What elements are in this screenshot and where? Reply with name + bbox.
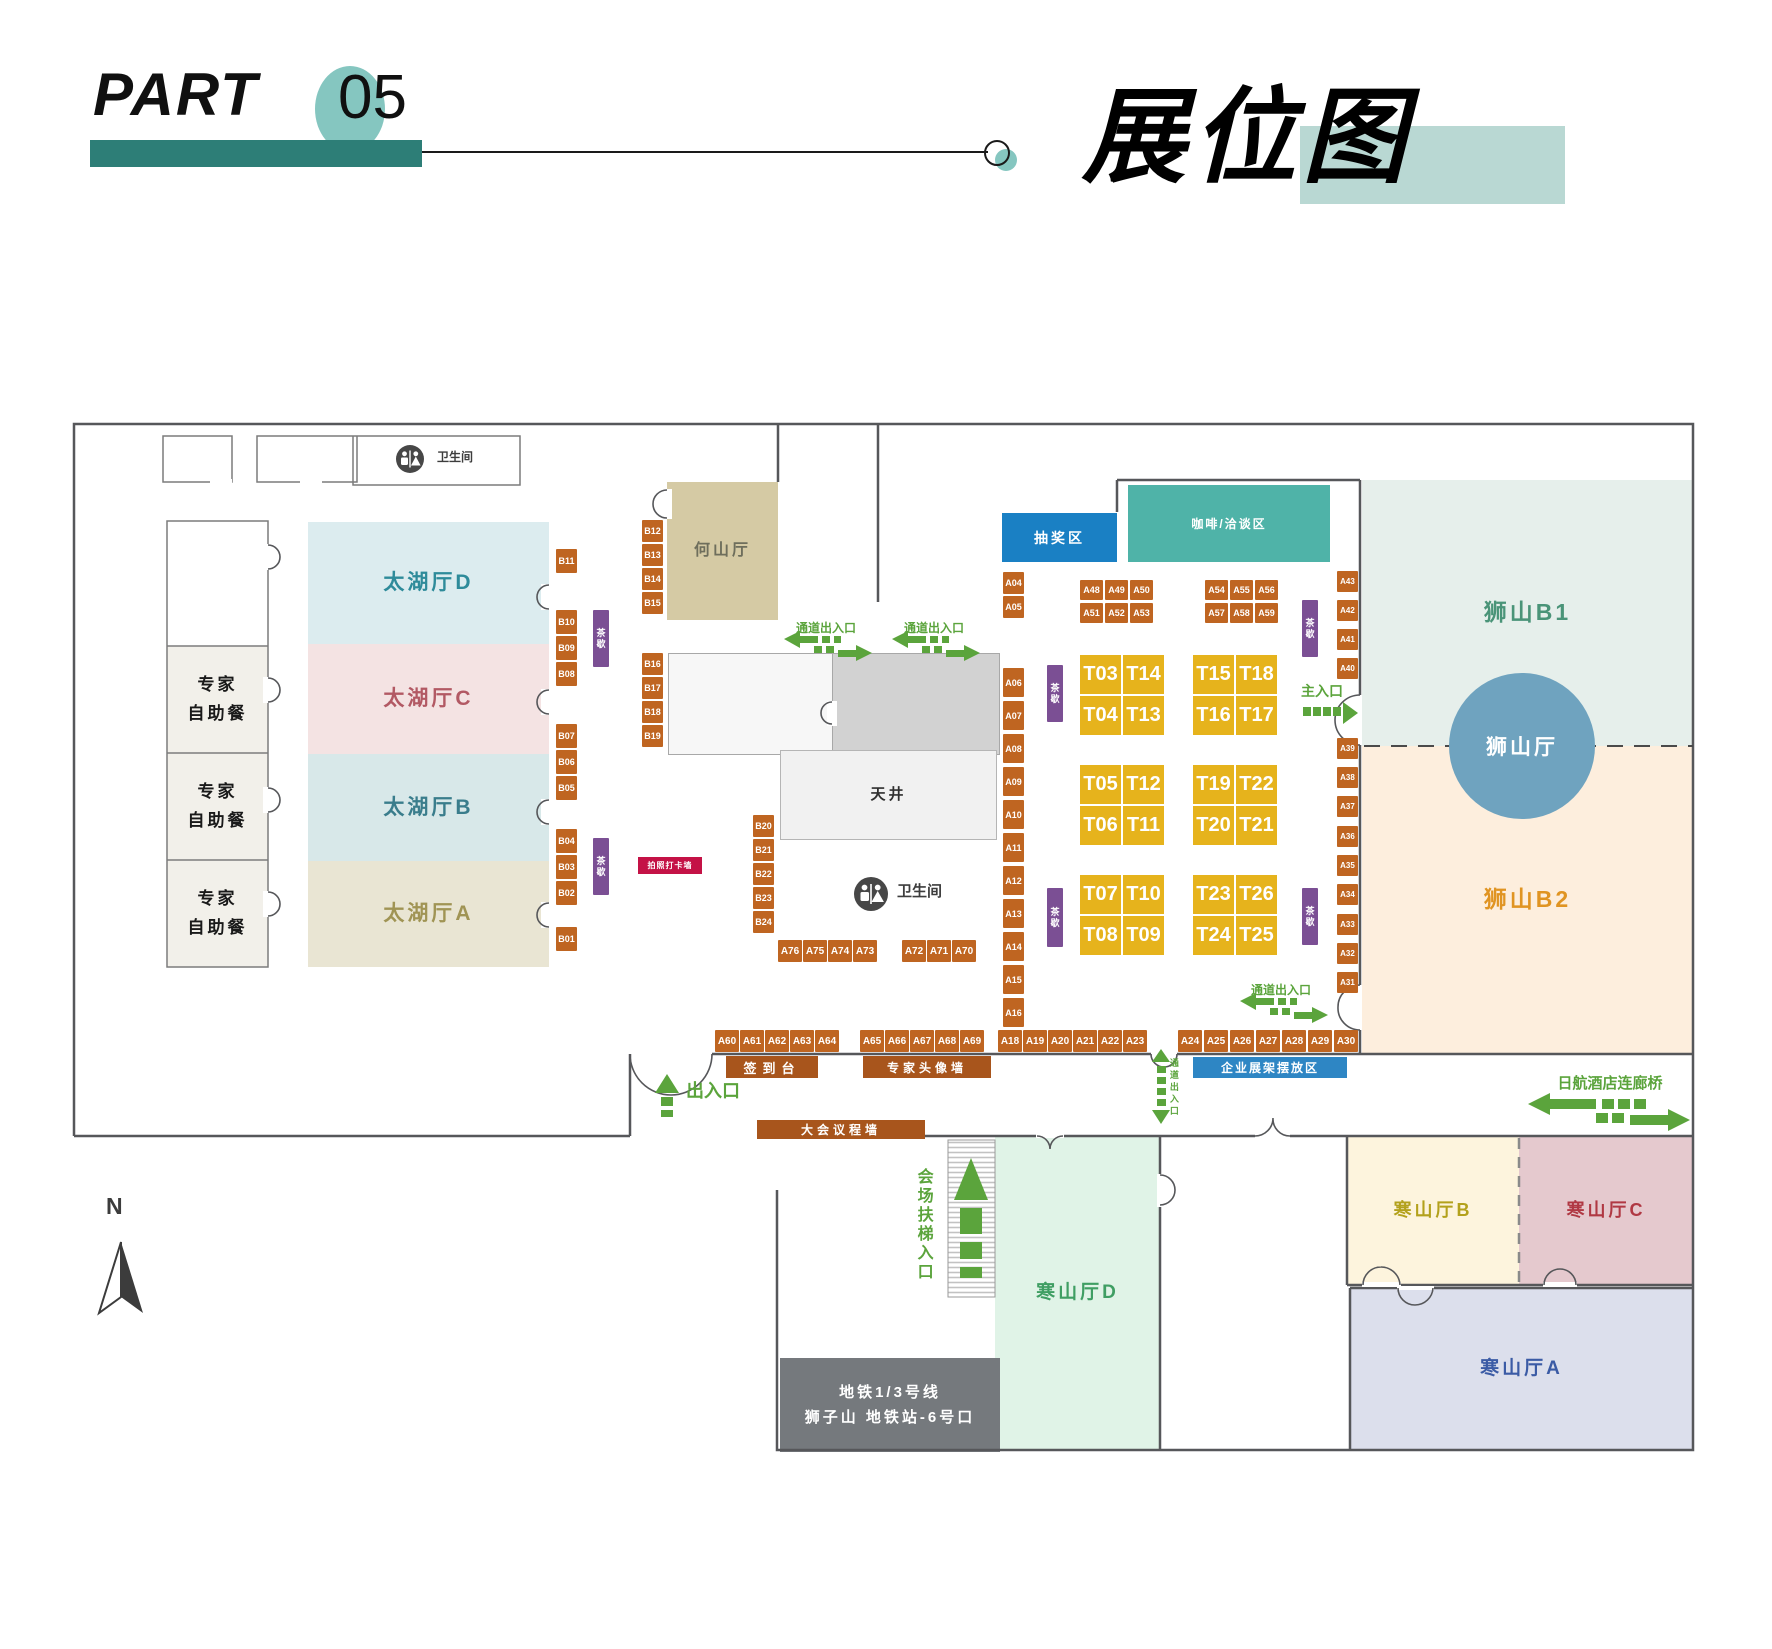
hotel-bridge-label: 日航酒店连廊桥 (1557, 1076, 1662, 1093)
tea-break-tag: 茶歇 (1047, 888, 1063, 947)
passage-entrance-label: 通道出入口 (1251, 984, 1311, 997)
booth-B21: B21 (753, 839, 774, 861)
booth-B23: B23 (753, 887, 774, 909)
booth-B17: B17 (642, 677, 663, 699)
booth-B12: B12 (642, 520, 663, 542)
booth-B18: B18 (642, 701, 663, 723)
booth-A37: A37 (1337, 796, 1358, 817)
compass-label: N (106, 1194, 123, 1219)
booth-B01: B01 (556, 927, 577, 951)
booth-A21: A21 (1073, 1030, 1097, 1052)
booth-T18: T18 (1236, 655, 1277, 694)
booth-A49: A49 (1105, 580, 1128, 600)
booth-B05: B05 (556, 776, 577, 800)
booth-T19: T19 (1193, 765, 1234, 804)
booth-B19: B19 (642, 725, 663, 747)
booth-A08: A08 (1003, 734, 1024, 763)
tea-break-tag: 茶歇 (593, 610, 609, 667)
floorplan-items: 抽奖区咖啡/洽谈区签到台专家头像墙企业展架摆放区大会议程墙拍照打卡墙B11B10… (0, 0, 1772, 1649)
booth-B13: B13 (642, 544, 663, 566)
booth-A26: A26 (1230, 1030, 1254, 1052)
booth-T11: T11 (1123, 806, 1164, 845)
bar-display-rack: 企业展架摆放区 (1193, 1057, 1347, 1078)
booth-B04: B04 (556, 829, 577, 853)
booth-B07: B07 (556, 724, 577, 748)
booth-A18: A18 (998, 1030, 1022, 1052)
booth-A12: A12 (1003, 866, 1024, 895)
booth-A27: A27 (1256, 1030, 1280, 1052)
booth-T05: T05 (1080, 765, 1121, 804)
booth-A29: A29 (1308, 1030, 1332, 1052)
booth-T17: T17 (1236, 696, 1277, 735)
booth-T09: T09 (1123, 916, 1164, 955)
tea-break-tag: 茶歇 (1302, 888, 1318, 945)
tea-break-tag: 茶歇 (1302, 600, 1318, 657)
restroom-label: 卫生间 (897, 884, 942, 901)
booth-A15: A15 (1003, 965, 1024, 994)
booth-A20: A20 (1048, 1030, 1072, 1052)
booth-A66: A66 (885, 1030, 909, 1052)
booth-A65: A65 (860, 1030, 884, 1052)
booth-A62: A62 (765, 1030, 789, 1052)
booth-T07: T07 (1080, 875, 1121, 914)
booth-A10: A10 (1003, 800, 1024, 829)
booth-A59: A59 (1255, 603, 1278, 623)
booth-A75: A75 (803, 940, 827, 962)
booth-T20: T20 (1193, 806, 1234, 845)
booth-B06: B06 (556, 750, 577, 774)
booth-T16: T16 (1193, 696, 1234, 735)
tea-break-tag: 茶歇 (593, 838, 609, 895)
booth-A30: A30 (1334, 1030, 1358, 1052)
booth-T08: T08 (1080, 916, 1121, 955)
booth-T13: T13 (1123, 696, 1164, 735)
booth-T23: T23 (1193, 875, 1234, 914)
booth-T21: T21 (1236, 806, 1277, 845)
booth-A14: A14 (1003, 932, 1024, 961)
booth-A39: A39 (1337, 738, 1358, 759)
booth-A60: A60 (715, 1030, 739, 1052)
booth-B02: B02 (556, 881, 577, 905)
booth-A07: A07 (1003, 701, 1024, 730)
booth-T03: T03 (1080, 655, 1121, 694)
booth-T10: T10 (1123, 875, 1164, 914)
booth-A72: A72 (902, 940, 926, 962)
main-entrance-label: 主入口 (1301, 684, 1343, 699)
booth-A69: A69 (960, 1030, 984, 1052)
booth-T04: T04 (1080, 696, 1121, 735)
booth-A05: A05 (1003, 596, 1024, 618)
booth-B20: B20 (753, 815, 774, 837)
booth-B16: B16 (642, 653, 663, 675)
booth-A19: A19 (1023, 1030, 1047, 1052)
booth-A41: A41 (1337, 629, 1358, 650)
booth-A23: A23 (1123, 1030, 1147, 1052)
booth-B24: B24 (753, 911, 774, 933)
booth-A32: A32 (1337, 943, 1358, 964)
booth-A42: A42 (1337, 600, 1358, 621)
escalator-entrance-label: 会场扶梯入口 (914, 1168, 932, 1282)
booth-T25: T25 (1236, 916, 1277, 955)
booth-A58: A58 (1230, 603, 1253, 623)
tag-photo-wall: 拍照打卡墙 (638, 857, 702, 874)
zone-lottery: 抽奖区 (1002, 513, 1117, 562)
booth-B22: B22 (753, 863, 774, 885)
booth-T26: T26 (1236, 875, 1277, 914)
booth-A33: A33 (1337, 914, 1358, 935)
booth-A54: A54 (1205, 580, 1228, 600)
bar-expert-wall: 专家头像墙 (863, 1056, 991, 1078)
passage-entrance-label: 通道出入口 (796, 622, 856, 635)
booth-A38: A38 (1337, 767, 1358, 788)
booth-A64: A64 (815, 1030, 839, 1052)
booth-A70: A70 (952, 940, 976, 962)
bar-agenda-wall: 大会议程墙 (757, 1120, 925, 1139)
booth-A50: A50 (1130, 580, 1153, 600)
booth-A13: A13 (1003, 899, 1024, 928)
booth-A68: A68 (935, 1030, 959, 1052)
bar-signin: 签到台 (726, 1056, 818, 1078)
booth-B10: B10 (556, 610, 577, 634)
booth-A52: A52 (1105, 603, 1128, 623)
booth-A25: A25 (1204, 1030, 1228, 1052)
booth-A48: A48 (1080, 580, 1103, 600)
booth-A22: A22 (1098, 1030, 1122, 1052)
booth-A11: A11 (1003, 833, 1024, 862)
booth-A56: A56 (1255, 580, 1278, 600)
booth-A61: A61 (740, 1030, 764, 1052)
booth-A04: A04 (1003, 572, 1024, 594)
booth-A63: A63 (790, 1030, 814, 1052)
booth-A06: A06 (1003, 668, 1024, 697)
booth-A40: A40 (1337, 658, 1358, 679)
booth-T24: T24 (1193, 916, 1234, 955)
passage-entrance-label: 通道出入口 (904, 622, 964, 635)
booth-A43: A43 (1337, 571, 1358, 592)
booth-B15: B15 (642, 592, 663, 614)
booth-A09: A09 (1003, 767, 1024, 796)
booth-T22: T22 (1236, 765, 1277, 804)
booth-A36: A36 (1337, 826, 1358, 847)
booth-A35: A35 (1337, 855, 1358, 876)
booth-A76: A76 (778, 940, 802, 962)
booth-A28: A28 (1282, 1030, 1306, 1052)
booth-A16: A16 (1003, 998, 1024, 1027)
booth-B03: B03 (556, 855, 577, 879)
booth-A74: A74 (828, 940, 852, 962)
hall-shishan-ting: 狮山厅 (1449, 673, 1595, 819)
tea-break-tag: 茶歇 (1047, 665, 1063, 722)
booth-B14: B14 (642, 568, 663, 590)
restroom-label: 卫生间 (437, 451, 473, 464)
booth-A34: A34 (1337, 884, 1358, 905)
booth-T15: T15 (1193, 655, 1234, 694)
booth-A57: A57 (1205, 603, 1228, 623)
booth-A31: A31 (1337, 972, 1358, 993)
page: PART 05 展位图 专家自助餐专家自助餐专家自助餐太湖厅D太湖厅C太湖厅B太… (0, 0, 1772, 1649)
booth-T06: T06 (1080, 806, 1121, 845)
zone-coffee: 咖啡/洽谈区 (1128, 485, 1330, 562)
booth-B09: B09 (556, 636, 577, 660)
booth-B08: B08 (556, 662, 577, 686)
booth-A55: A55 (1230, 580, 1253, 600)
booth-A24: A24 (1178, 1030, 1202, 1052)
booth-A73: A73 (853, 940, 877, 962)
booth-T14: T14 (1123, 655, 1164, 694)
booth-A67: A67 (910, 1030, 934, 1052)
booth-A51: A51 (1080, 603, 1103, 623)
booth-A53: A53 (1130, 603, 1153, 623)
booth-B11: B11 (556, 549, 577, 573)
exit-label: 出入口 (686, 1082, 740, 1102)
booth-A71: A71 (927, 940, 951, 962)
booth-T12: T12 (1123, 765, 1164, 804)
passage-entrance-label-vertical: 通道出入口 (1168, 1058, 1178, 1118)
